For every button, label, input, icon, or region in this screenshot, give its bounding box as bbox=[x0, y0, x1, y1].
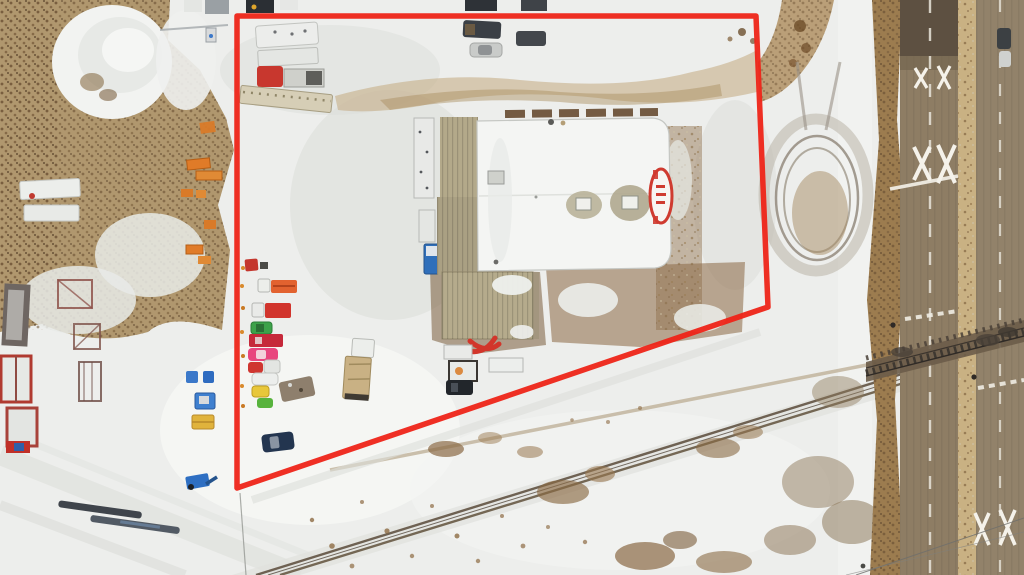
white-box-trailer bbox=[444, 345, 472, 359]
bush bbox=[585, 466, 615, 482]
weed bbox=[583, 540, 587, 544]
white-car bbox=[264, 360, 280, 373]
orange-equipment bbox=[198, 256, 211, 264]
cutoff-pickup-top bbox=[465, 0, 497, 11]
orange-equipment bbox=[187, 158, 211, 170]
orange-equipment bbox=[204, 220, 216, 229]
cutoff-vehicle-topleft bbox=[184, 0, 202, 12]
dirt-dot bbox=[738, 28, 746, 36]
silver-car-glass bbox=[478, 45, 492, 55]
weed bbox=[410, 554, 414, 558]
road-median-tex bbox=[958, 0, 976, 575]
mud-spot bbox=[794, 20, 806, 32]
rv-vent bbox=[273, 30, 276, 33]
orange-equipment bbox=[196, 190, 206, 198]
crimson-truck bbox=[249, 334, 283, 347]
bush bbox=[812, 376, 864, 408]
crossing-signal bbox=[971, 374, 976, 379]
gravel-dot bbox=[299, 388, 303, 392]
roof-oval-sign-text bbox=[656, 185, 665, 188]
roof-vent bbox=[488, 171, 504, 184]
weed bbox=[476, 559, 480, 563]
red-blue-truck-cab bbox=[14, 443, 24, 451]
weed bbox=[329, 543, 335, 549]
red-pickup-body bbox=[265, 303, 291, 318]
navy-suv-glass bbox=[269, 436, 279, 449]
semi-truck-cab-red bbox=[257, 66, 283, 87]
blue-truck-cab bbox=[426, 246, 438, 256]
green-mini-car bbox=[257, 398, 273, 408]
white-box-trailer bbox=[489, 358, 523, 372]
roof-dot bbox=[535, 196, 538, 199]
roof-hvac-unit bbox=[622, 196, 638, 209]
bush bbox=[517, 446, 543, 458]
trailer-hatch bbox=[426, 187, 429, 190]
rv-vent bbox=[290, 32, 293, 35]
trailer-hatch bbox=[419, 131, 422, 134]
dirt-smudge bbox=[99, 89, 117, 101]
blue-machine-top bbox=[199, 396, 209, 404]
weed bbox=[430, 504, 434, 508]
weed bbox=[455, 534, 460, 539]
bush bbox=[537, 480, 589, 504]
weed bbox=[521, 544, 526, 549]
red-frame-trailer bbox=[7, 408, 37, 446]
dirt-dot bbox=[728, 37, 733, 42]
tire-loop-mud bbox=[792, 171, 848, 255]
red-small-car bbox=[248, 362, 263, 373]
pink-car-glass bbox=[256, 350, 266, 359]
small-red-car bbox=[244, 258, 258, 271]
crossing-smudge bbox=[976, 334, 1000, 346]
bush bbox=[615, 542, 675, 570]
bush bbox=[478, 432, 502, 444]
white-storage-trailer bbox=[414, 118, 434, 198]
fence-post-marker bbox=[240, 284, 244, 288]
orange-equipment bbox=[181, 189, 193, 197]
black-pickup-south bbox=[446, 380, 473, 395]
weed bbox=[546, 525, 550, 529]
dump-truck-cab bbox=[351, 338, 374, 357]
snow-patch bbox=[558, 283, 618, 317]
white-car bbox=[252, 373, 278, 385]
weed bbox=[638, 406, 642, 410]
dump-truck-bed bbox=[343, 356, 372, 400]
white-rv-trailer bbox=[255, 22, 318, 48]
car-on-road bbox=[999, 51, 1011, 67]
annex-snow-blob bbox=[492, 275, 532, 295]
cutoff-truck-light bbox=[252, 5, 257, 10]
orange-equipment bbox=[186, 245, 203, 254]
cutoff-suv-top bbox=[521, 0, 547, 11]
dark-suv-north bbox=[516, 31, 546, 46]
small-dark-item bbox=[260, 262, 268, 269]
roof-oval-sign-text bbox=[656, 201, 665, 204]
fence-post-marker bbox=[240, 330, 244, 334]
tow-truck-cab bbox=[258, 279, 270, 292]
trailer-hatch bbox=[426, 151, 429, 154]
aerial-photo bbox=[0, 0, 1024, 575]
bush bbox=[733, 425, 763, 439]
weed bbox=[310, 518, 314, 522]
gravel-dot bbox=[288, 383, 292, 387]
crimson-truck-glass bbox=[255, 337, 262, 344]
white-trailer-far-west bbox=[24, 205, 79, 221]
orange-equipment bbox=[196, 171, 222, 180]
weed bbox=[500, 514, 504, 518]
building-roof-north-wing-ridges bbox=[440, 117, 478, 197]
bush bbox=[782, 456, 854, 508]
car-on-road bbox=[997, 28, 1011, 49]
weed bbox=[570, 418, 574, 422]
roof-edge-red bbox=[653, 170, 658, 179]
snow-covered-trailer-snow bbox=[6, 290, 25, 341]
blue-bin bbox=[203, 371, 214, 383]
fence-post-marker bbox=[241, 266, 245, 270]
red-pickup-cab bbox=[252, 303, 264, 317]
roof-dot bbox=[548, 119, 554, 125]
aerial-photo-canvas bbox=[0, 0, 1024, 575]
roof-hvac-unit bbox=[576, 198, 591, 210]
fence-post-marker bbox=[240, 384, 244, 388]
orange-equipment bbox=[199, 121, 215, 134]
blue-bin bbox=[186, 371, 198, 383]
snow-mound-swirl bbox=[102, 28, 154, 72]
cutoff-vehicle-topleft bbox=[205, 0, 229, 14]
white-trailer bbox=[258, 47, 319, 66]
annex-snow-blob bbox=[510, 325, 534, 339]
black-pickup-window bbox=[451, 383, 458, 392]
white-storage-trailer bbox=[419, 210, 435, 242]
cutoff-white-top bbox=[280, 0, 298, 10]
mud-spot bbox=[801, 43, 811, 53]
fence-post-marker bbox=[241, 306, 245, 310]
weed bbox=[606, 420, 610, 424]
power-pole bbox=[861, 564, 866, 569]
tractor-wheel bbox=[188, 484, 194, 490]
crossing-signal bbox=[890, 322, 895, 327]
roof-dot bbox=[494, 260, 499, 265]
roof-snow-shade bbox=[488, 138, 512, 262]
fence-post-marker bbox=[241, 404, 245, 408]
cutoff-truck-top bbox=[246, 0, 274, 13]
roof-dot bbox=[561, 121, 566, 126]
green-car-glass bbox=[256, 324, 264, 332]
weed bbox=[384, 528, 389, 533]
trailer-hatch bbox=[420, 171, 423, 174]
fence-post-marker bbox=[241, 354, 245, 358]
scene-layers bbox=[0, 0, 1024, 575]
bush bbox=[428, 441, 464, 457]
bush bbox=[764, 525, 816, 555]
crossing-smudge bbox=[998, 327, 1018, 337]
bush bbox=[696, 551, 752, 573]
bush bbox=[696, 438, 740, 458]
roof-edge-red bbox=[653, 216, 658, 224]
small-item-blue-dot bbox=[209, 34, 213, 38]
yellow-car bbox=[252, 386, 269, 397]
black-pickup-bed bbox=[465, 24, 475, 35]
framed-flatbed-glint bbox=[455, 367, 463, 375]
rv-vent bbox=[303, 29, 306, 32]
snow-patch bbox=[156, 10, 216, 110]
white-trailer-far-west bbox=[20, 178, 81, 199]
weed bbox=[360, 500, 364, 504]
dirt-smudge bbox=[80, 73, 104, 91]
bush bbox=[663, 531, 697, 549]
crossing-smudge bbox=[891, 347, 913, 357]
annex-shadow bbox=[533, 272, 539, 339]
semi-truck-load bbox=[306, 71, 322, 85]
red-marker bbox=[29, 193, 35, 199]
weed bbox=[350, 564, 355, 569]
roof-oval-sign-text bbox=[656, 193, 666, 196]
